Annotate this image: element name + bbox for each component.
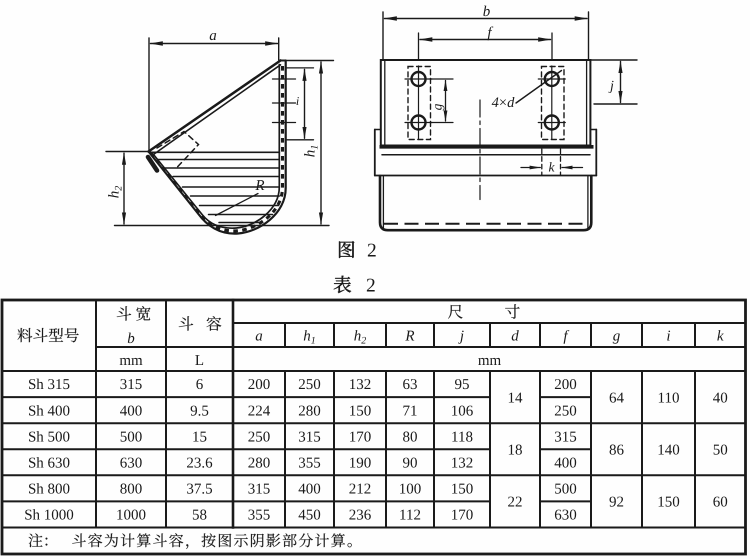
- svg-text:a: a: [255, 329, 263, 345]
- svg-text:Sh 500: Sh 500: [28, 429, 70, 445]
- svg-text:400: 400: [298, 482, 321, 498]
- svg-text:80: 80: [403, 429, 418, 445]
- svg-text:112: 112: [399, 508, 421, 524]
- svg-text:40: 40: [713, 390, 728, 406]
- svg-text:280: 280: [248, 456, 271, 472]
- svg-text:mm: mm: [478, 353, 502, 369]
- svg-text:k: k: [549, 160, 556, 175]
- svg-text:R: R: [404, 329, 414, 345]
- svg-text:170: 170: [451, 508, 474, 524]
- svg-text:200: 200: [248, 377, 271, 393]
- svg-text:500: 500: [120, 429, 143, 445]
- svg-text:355: 355: [248, 508, 271, 524]
- svg-text:400: 400: [120, 403, 143, 419]
- svg-text:315: 315: [248, 482, 271, 498]
- svg-text:315: 315: [298, 429, 321, 445]
- svg-text:110: 110: [658, 390, 680, 406]
- svg-text:b: b: [127, 331, 135, 347]
- svg-text:4×d: 4×d: [492, 95, 515, 111]
- svg-text:6: 6: [196, 377, 204, 393]
- svg-text:g: g: [430, 103, 445, 110]
- svg-text:150: 150: [657, 495, 680, 511]
- svg-text:18: 18: [508, 442, 523, 458]
- svg-text:150: 150: [451, 482, 474, 498]
- svg-text:9.5: 9.5: [190, 403, 209, 419]
- svg-text:400: 400: [554, 456, 577, 472]
- svg-text:Sh 315: Sh 315: [28, 377, 70, 393]
- svg-text:d: d: [511, 329, 519, 345]
- svg-text:f: f: [563, 329, 569, 345]
- svg-text:63: 63: [403, 377, 418, 393]
- svg-text:g: g: [613, 329, 621, 345]
- svg-text:Sh 1000: Sh 1000: [24, 508, 74, 524]
- svg-text:132: 132: [349, 377, 372, 393]
- svg-text:500: 500: [554, 482, 577, 498]
- svg-text:h1: h1: [303, 329, 316, 347]
- svg-text:118: 118: [451, 429, 473, 445]
- svg-text:140: 140: [657, 442, 680, 458]
- svg-text:b: b: [483, 4, 491, 20]
- svg-text:355: 355: [298, 456, 321, 472]
- svg-text:L: L: [195, 353, 204, 369]
- svg-text:92: 92: [609, 495, 624, 511]
- svg-text:450: 450: [298, 508, 321, 524]
- svg-text:14: 14: [508, 390, 524, 406]
- svg-text:250: 250: [298, 377, 321, 393]
- svg-text:86: 86: [609, 442, 625, 458]
- svg-text:h2: h2: [107, 186, 125, 199]
- svg-text:224: 224: [248, 403, 271, 419]
- svg-text:Sh 400: Sh 400: [28, 403, 70, 419]
- svg-text:23.6: 23.6: [186, 456, 213, 472]
- svg-text:190: 190: [349, 456, 372, 472]
- svg-text:k: k: [717, 329, 724, 345]
- svg-text:2: 2: [366, 276, 376, 297]
- svg-text:Sh 800: Sh 800: [28, 482, 70, 498]
- svg-text:15: 15: [192, 429, 207, 445]
- svg-text:58: 58: [192, 508, 207, 524]
- svg-text:200: 200: [554, 377, 577, 393]
- svg-text:R: R: [254, 178, 264, 194]
- svg-text:630: 630: [120, 456, 143, 472]
- svg-text:22: 22: [508, 495, 523, 511]
- svg-text:1000: 1000: [116, 508, 146, 524]
- svg-text:37.5: 37.5: [186, 482, 212, 498]
- svg-text:2: 2: [367, 241, 377, 262]
- svg-text:630: 630: [554, 508, 577, 524]
- svg-text:95: 95: [455, 377, 470, 393]
- svg-text:h2: h2: [354, 329, 367, 347]
- svg-text:71: 71: [403, 403, 418, 419]
- svg-text:j: j: [458, 329, 464, 345]
- svg-text:800: 800: [120, 482, 143, 498]
- svg-text:mm: mm: [119, 353, 143, 369]
- svg-text:212: 212: [349, 482, 372, 498]
- svg-text:f: f: [487, 25, 493, 41]
- svg-text:100: 100: [399, 482, 422, 498]
- svg-text:a: a: [209, 28, 217, 44]
- svg-text:250: 250: [248, 429, 271, 445]
- svg-text:150: 150: [349, 403, 372, 419]
- svg-text:315: 315: [120, 377, 143, 393]
- svg-text:90: 90: [403, 456, 418, 472]
- svg-text:Sh 630: Sh 630: [28, 456, 70, 472]
- svg-text:250: 250: [554, 403, 577, 419]
- svg-text:i: i: [666, 329, 670, 345]
- svg-text:64: 64: [609, 390, 625, 406]
- svg-text:315: 315: [554, 429, 577, 445]
- svg-text:50: 50: [713, 442, 728, 458]
- svg-text:170: 170: [349, 429, 372, 445]
- svg-text:i: i: [296, 94, 299, 108]
- svg-text:106: 106: [451, 403, 474, 419]
- svg-text:j: j: [608, 79, 614, 94]
- svg-text:236: 236: [349, 508, 372, 524]
- svg-text:132: 132: [451, 456, 474, 472]
- svg-text:280: 280: [298, 403, 321, 419]
- svg-text:h1: h1: [303, 145, 321, 158]
- svg-text:60: 60: [713, 495, 728, 511]
